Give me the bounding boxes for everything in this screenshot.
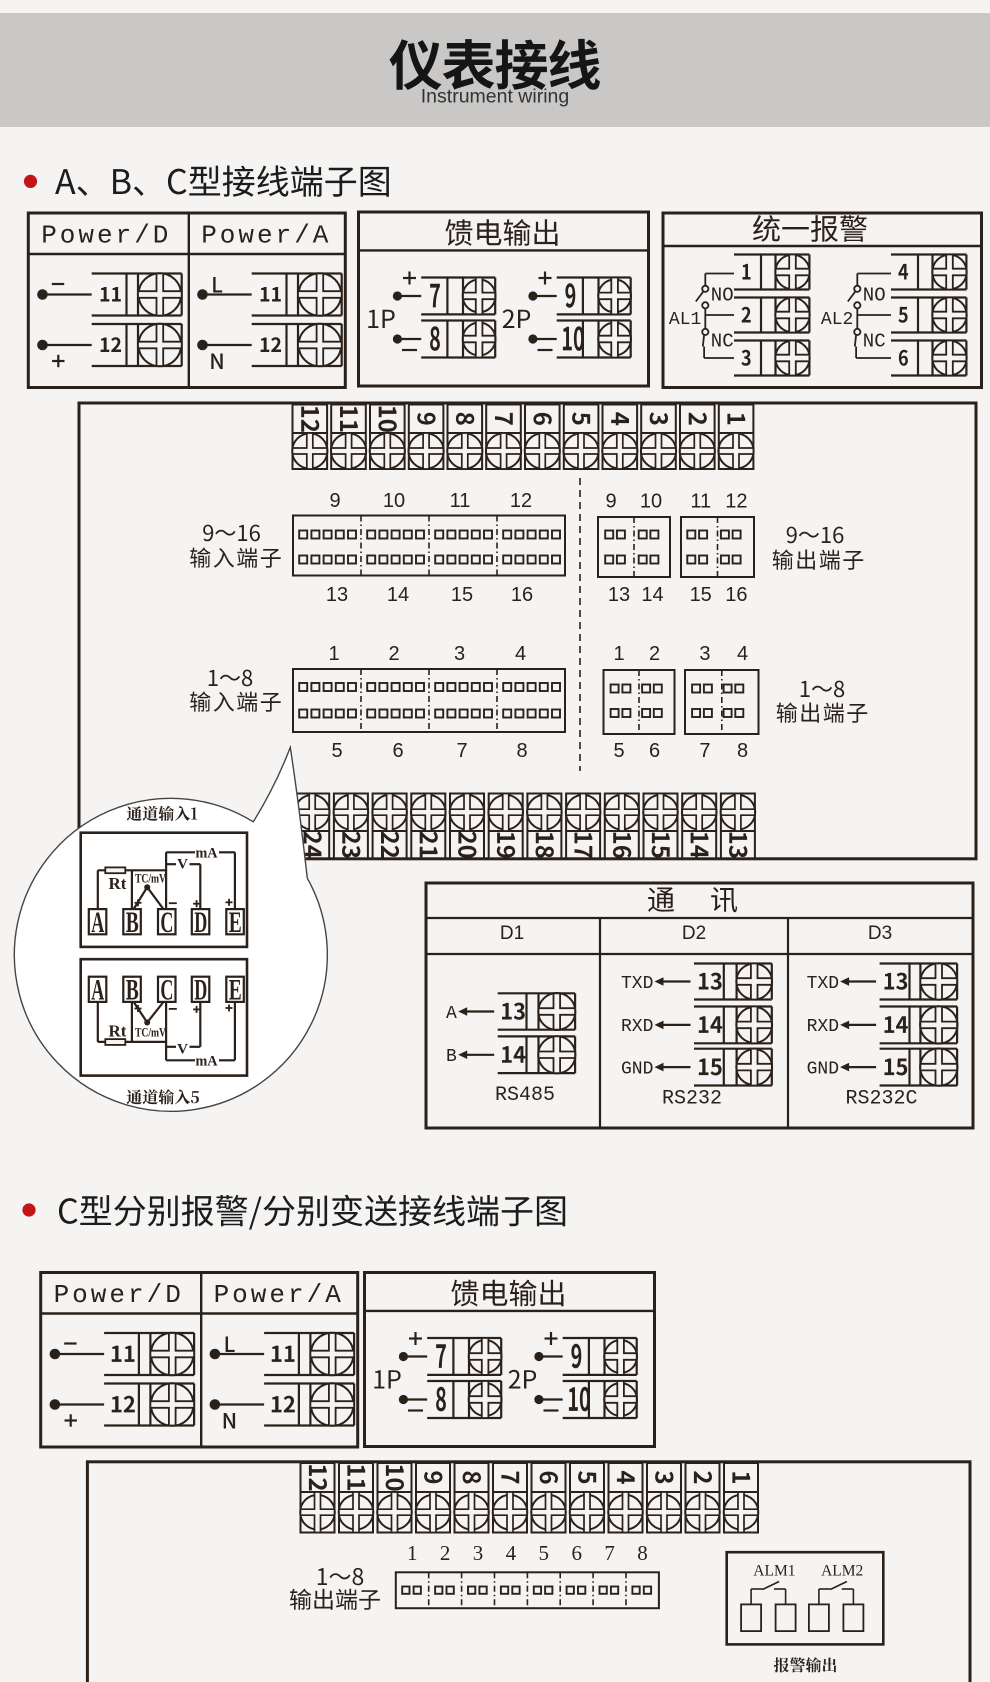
svg-text:Power/D: Power/D	[54, 1280, 184, 1310]
svg-text:GND: GND	[807, 1059, 839, 1079]
svg-text:5: 5	[613, 740, 624, 762]
svg-text:7: 7	[456, 740, 467, 762]
svg-text:3: 3	[454, 643, 465, 665]
svg-text:11: 11	[690, 491, 711, 513]
svg-text:D3: D3	[868, 923, 892, 944]
svg-text:NO: NO	[863, 285, 886, 307]
svg-text:12: 12	[510, 490, 532, 512]
svg-text:ALM1: ALM1	[753, 1563, 795, 1580]
svg-text:16: 16	[725, 584, 747, 606]
svg-text:1: 1	[328, 643, 339, 665]
svg-text:A: A	[91, 973, 104, 1006]
svg-text:4: 4	[506, 1541, 517, 1565]
svg-text:2: 2	[649, 643, 660, 665]
svg-text:13: 13	[326, 584, 348, 606]
svg-text:10: 10	[383, 490, 405, 512]
svg-text:V: V	[177, 857, 188, 873]
svg-text:AL1: AL1	[669, 310, 701, 330]
svg-text:11: 11	[450, 490, 471, 512]
svg-text:TXD: TXD	[621, 974, 653, 994]
svg-text:mA: mA	[196, 846, 218, 862]
svg-text:12: 12	[725, 491, 747, 513]
svg-text:C: C	[160, 906, 173, 939]
svg-text:3: 3	[473, 1541, 484, 1565]
svg-text:NO: NO	[711, 285, 734, 307]
svg-text:7: 7	[604, 1541, 615, 1565]
svg-text:RS232C: RS232C	[845, 1088, 917, 1111]
svg-text:15: 15	[690, 584, 712, 606]
svg-text:8: 8	[516, 740, 527, 762]
svg-text:NC: NC	[863, 331, 886, 353]
svg-text:1: 1	[407, 1541, 418, 1565]
svg-text:Power/A: Power/A	[201, 221, 331, 251]
svg-text:4: 4	[737, 643, 748, 665]
svg-text:13: 13	[608, 584, 630, 606]
svg-text:A: A	[91, 906, 104, 939]
svg-text:D: D	[194, 906, 207, 939]
svg-text:NC: NC	[711, 331, 734, 353]
svg-text:B: B	[446, 1047, 457, 1067]
svg-text:D: D	[194, 973, 207, 1006]
svg-text:RXD: RXD	[621, 1017, 653, 1037]
svg-text:14: 14	[387, 584, 409, 606]
svg-text:9: 9	[329, 490, 340, 512]
svg-text:2: 2	[388, 643, 399, 665]
svg-text:TC/mV: TC/mV	[135, 1025, 166, 1039]
svg-text:1: 1	[613, 643, 624, 665]
svg-text:RS232: RS232	[662, 1088, 722, 1111]
svg-text:A: A	[446, 1004, 457, 1024]
svg-text:14: 14	[641, 584, 663, 606]
svg-text:GND: GND	[621, 1059, 653, 1079]
svg-text:ALM2: ALM2	[821, 1563, 863, 1580]
svg-text:D1: D1	[500, 923, 524, 944]
svg-text:9: 9	[605, 491, 616, 513]
svg-text:10: 10	[640, 491, 662, 513]
svg-text:B: B	[126, 973, 139, 1006]
svg-text:D2: D2	[682, 923, 706, 944]
svg-text:TC/mV: TC/mV	[135, 872, 166, 886]
svg-text:Power/D: Power/D	[41, 221, 171, 251]
svg-text:6: 6	[571, 1541, 582, 1565]
svg-text:2: 2	[440, 1541, 451, 1565]
svg-text:4: 4	[515, 643, 526, 665]
svg-text:RXD: RXD	[807, 1017, 839, 1037]
svg-text:Instrument wiring: Instrument wiring	[421, 86, 569, 108]
svg-text:C: C	[160, 973, 173, 1006]
svg-text:AL2: AL2	[821, 310, 853, 330]
svg-text:6: 6	[649, 740, 660, 762]
svg-text:3: 3	[699, 643, 710, 665]
svg-text:E: E	[229, 906, 242, 939]
svg-text:6: 6	[392, 740, 403, 762]
svg-text:Rt: Rt	[109, 874, 127, 893]
svg-text:V: V	[177, 1042, 188, 1058]
svg-text:8: 8	[637, 1541, 648, 1565]
svg-text:5: 5	[539, 1541, 550, 1565]
svg-text:RS485: RS485	[495, 1084, 555, 1107]
svg-text:15: 15	[451, 584, 473, 606]
svg-text:Power/A: Power/A	[214, 1280, 344, 1310]
svg-text:Rt: Rt	[109, 1022, 127, 1041]
svg-text:mA: mA	[196, 1053, 218, 1069]
svg-text:E: E	[229, 973, 242, 1006]
svg-text:16: 16	[511, 584, 533, 606]
svg-text:7: 7	[699, 740, 710, 762]
svg-text:TXD: TXD	[807, 974, 839, 994]
svg-text:5: 5	[331, 740, 342, 762]
svg-text:8: 8	[737, 740, 748, 762]
svg-text:B: B	[126, 906, 139, 939]
